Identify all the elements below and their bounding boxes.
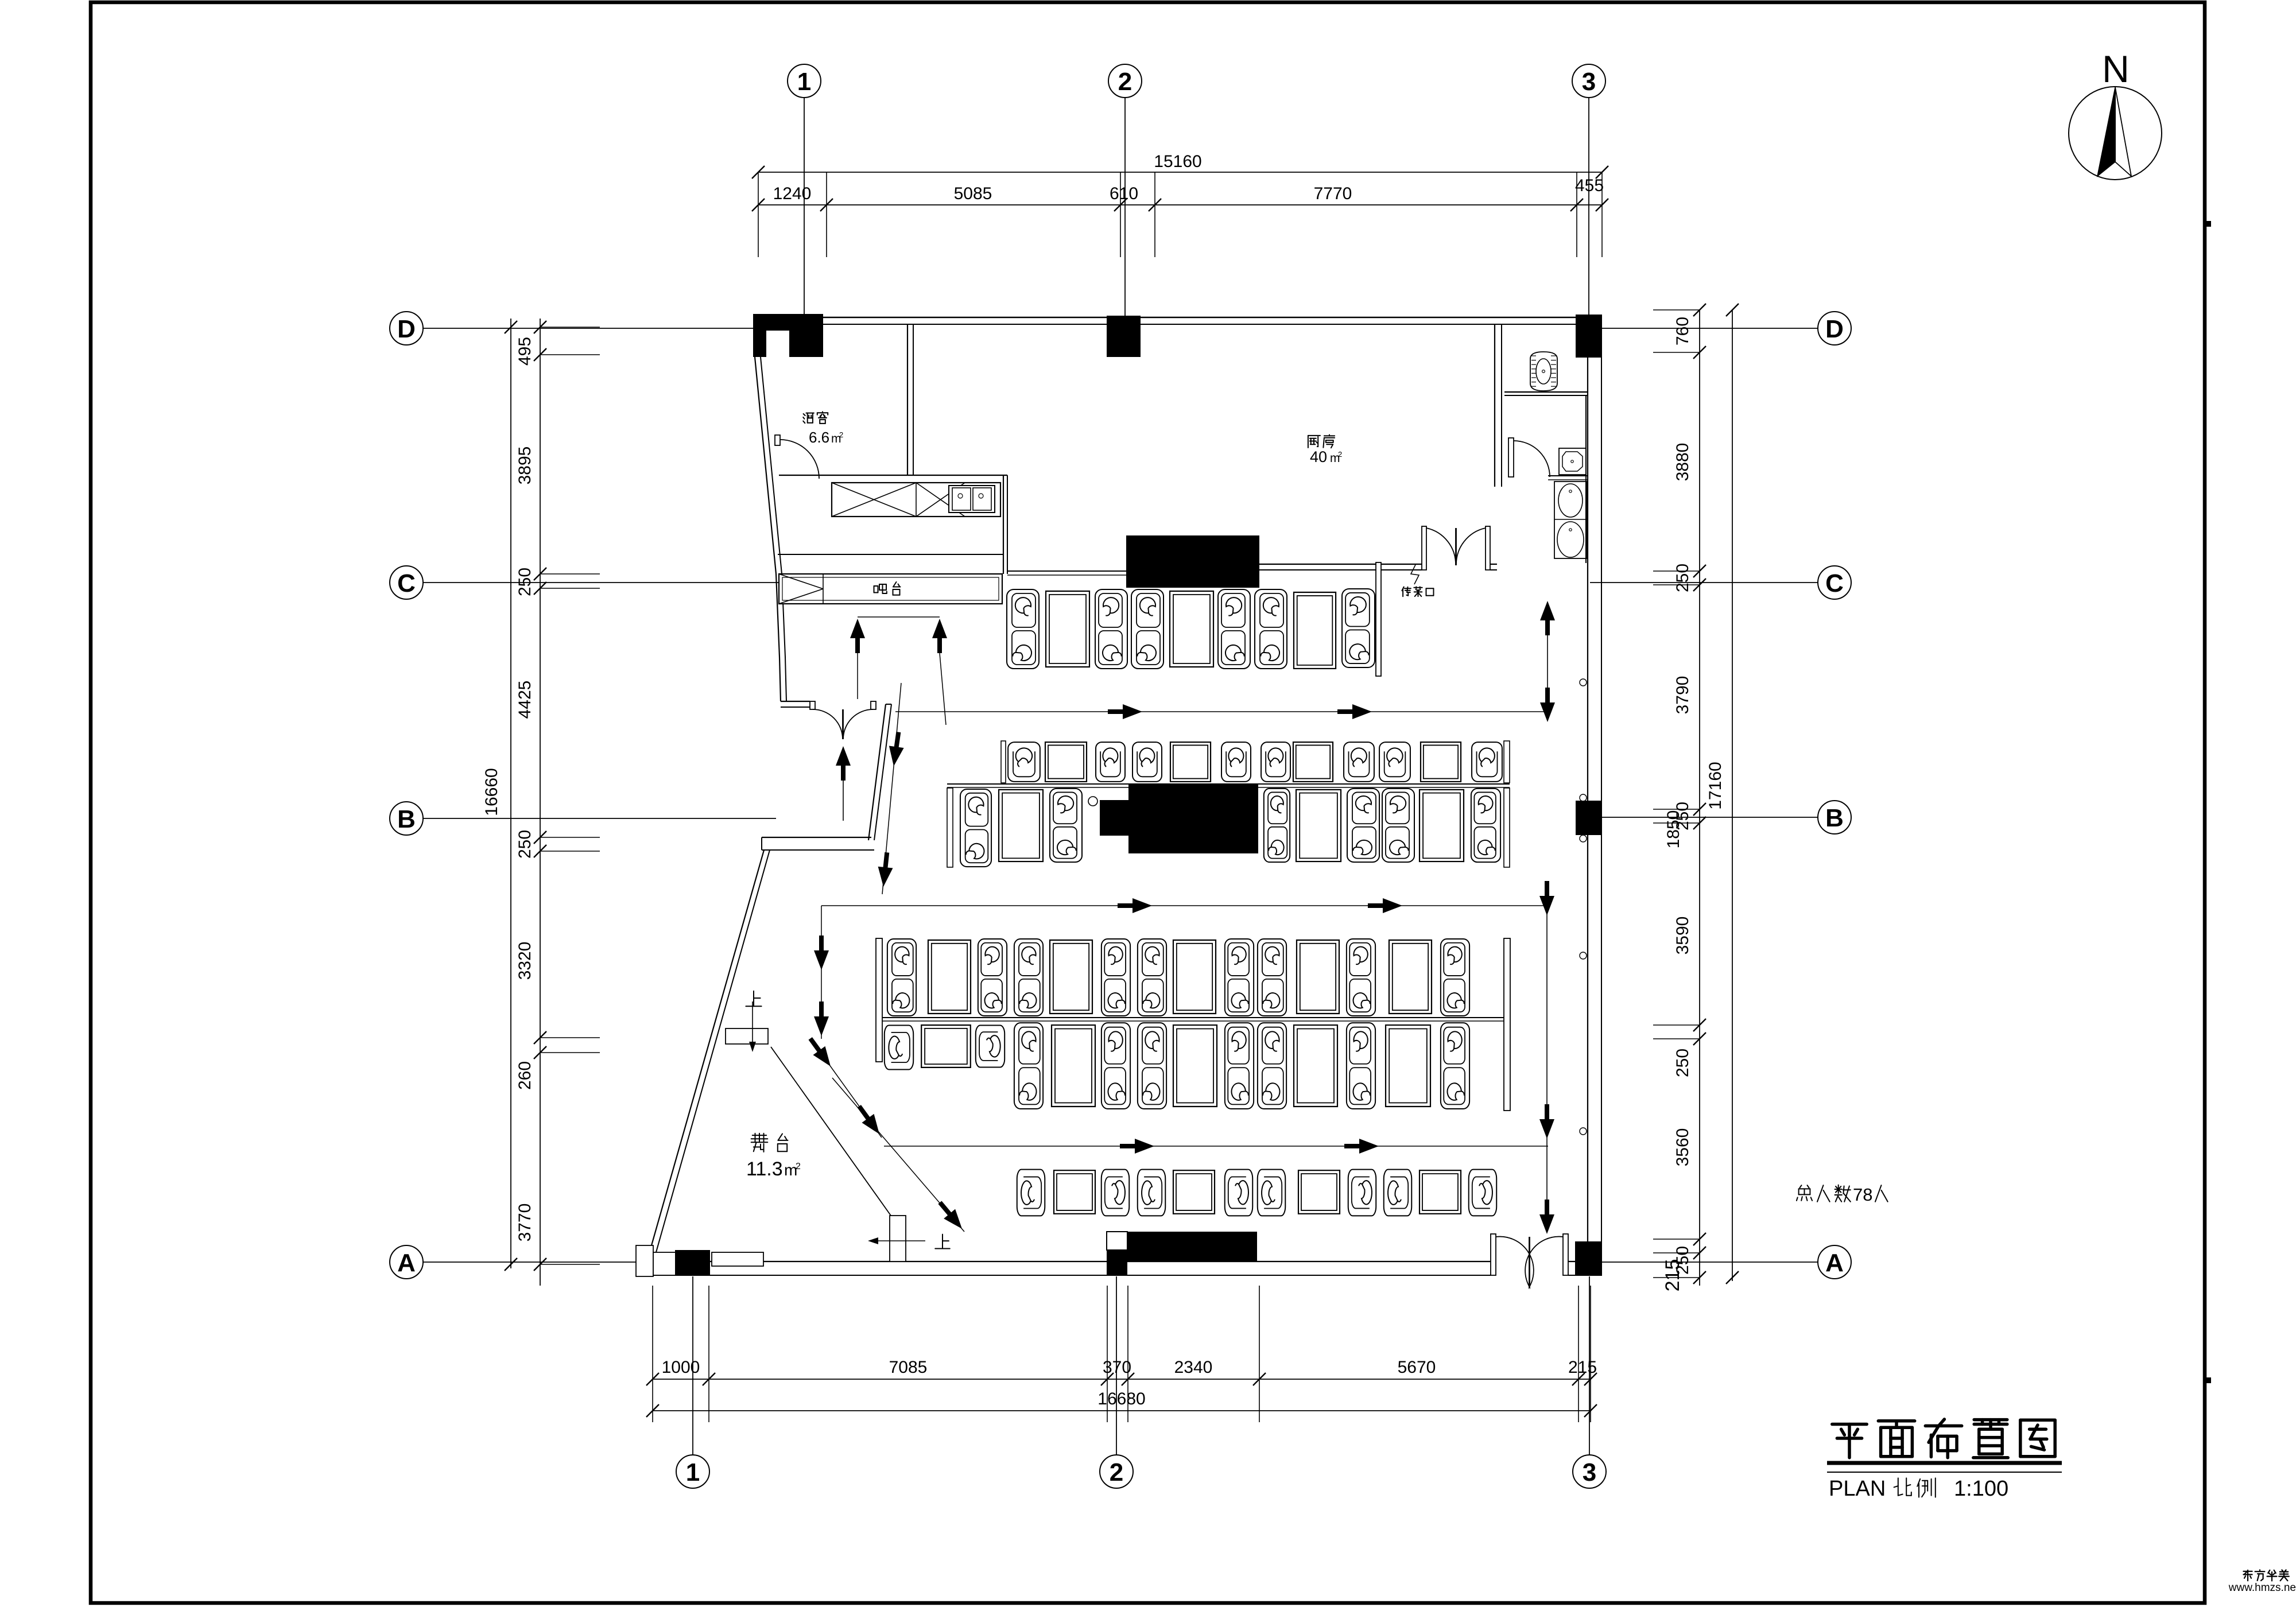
- svg-text:2340: 2340: [1174, 1358, 1213, 1377]
- svg-text:1:100: 1:100: [1954, 1477, 2008, 1501]
- svg-text:3590: 3590: [1673, 917, 1692, 955]
- svg-text:2: 2: [1118, 68, 1132, 96]
- svg-text:3880: 3880: [1673, 443, 1692, 482]
- svg-text:D: D: [1825, 315, 1844, 343]
- svg-text:3320: 3320: [515, 942, 534, 980]
- svg-text:www.hmzs.net: www.hmzs.net: [2228, 1582, 2296, 1594]
- svg-text:3770: 3770: [515, 1204, 534, 1242]
- svg-text:250: 250: [515, 830, 534, 859]
- svg-text:215: 215: [1568, 1358, 1597, 1377]
- svg-text:78: 78: [1853, 1185, 1872, 1205]
- svg-text:40: 40: [1310, 448, 1327, 465]
- svg-text:B: B: [397, 805, 416, 833]
- svg-text:6.6: 6.6: [809, 429, 829, 446]
- svg-text:C: C: [397, 569, 416, 597]
- svg-text:1000: 1000: [662, 1358, 700, 1377]
- svg-text:2: 2: [839, 430, 843, 439]
- svg-text:370: 370: [1103, 1358, 1131, 1377]
- svg-text:610: 610: [1110, 184, 1138, 203]
- svg-text:260: 260: [515, 1061, 534, 1090]
- svg-text:7085: 7085: [889, 1358, 928, 1377]
- svg-text:3: 3: [1582, 68, 1596, 96]
- svg-text:215: 215: [1662, 1259, 1684, 1292]
- svg-text:2: 2: [1110, 1458, 1123, 1486]
- svg-text:15160: 15160: [1154, 152, 1201, 171]
- svg-text:B: B: [1825, 804, 1844, 832]
- svg-text:3: 3: [1583, 1458, 1596, 1486]
- svg-text:7770: 7770: [1314, 184, 1352, 203]
- svg-text:A: A: [397, 1249, 416, 1277]
- svg-text:1: 1: [686, 1458, 700, 1486]
- svg-text:3790: 3790: [1673, 676, 1692, 715]
- svg-text:1240: 1240: [773, 184, 812, 203]
- svg-text:16680: 16680: [1097, 1389, 1145, 1408]
- svg-text:11.3: 11.3: [746, 1158, 783, 1180]
- svg-text:A: A: [1825, 1249, 1844, 1277]
- svg-text:D: D: [397, 315, 416, 343]
- svg-text:16660: 16660: [482, 768, 501, 816]
- svg-text:C: C: [1825, 569, 1844, 597]
- svg-text:250: 250: [1673, 564, 1692, 592]
- svg-text:2: 2: [796, 1162, 801, 1171]
- svg-text:250: 250: [515, 568, 534, 596]
- svg-text:760: 760: [1673, 317, 1692, 346]
- svg-text:495: 495: [515, 337, 534, 366]
- svg-text:17160: 17160: [1706, 762, 1725, 809]
- svg-text:2: 2: [1338, 450, 1342, 459]
- svg-text:5085: 5085: [954, 184, 992, 203]
- svg-text:455: 455: [1575, 176, 1604, 195]
- svg-text:3560: 3560: [1673, 1128, 1692, 1167]
- svg-text:250: 250: [1673, 1049, 1692, 1077]
- svg-text:4425: 4425: [515, 681, 534, 719]
- svg-text:PLAN: PLAN: [1829, 1477, 1886, 1501]
- svg-text:5670: 5670: [1398, 1358, 1436, 1377]
- svg-text:N: N: [2102, 48, 2130, 90]
- svg-text:3895: 3895: [515, 447, 534, 485]
- svg-text:1850: 1850: [1664, 810, 1683, 849]
- svg-text:1: 1: [797, 68, 811, 96]
